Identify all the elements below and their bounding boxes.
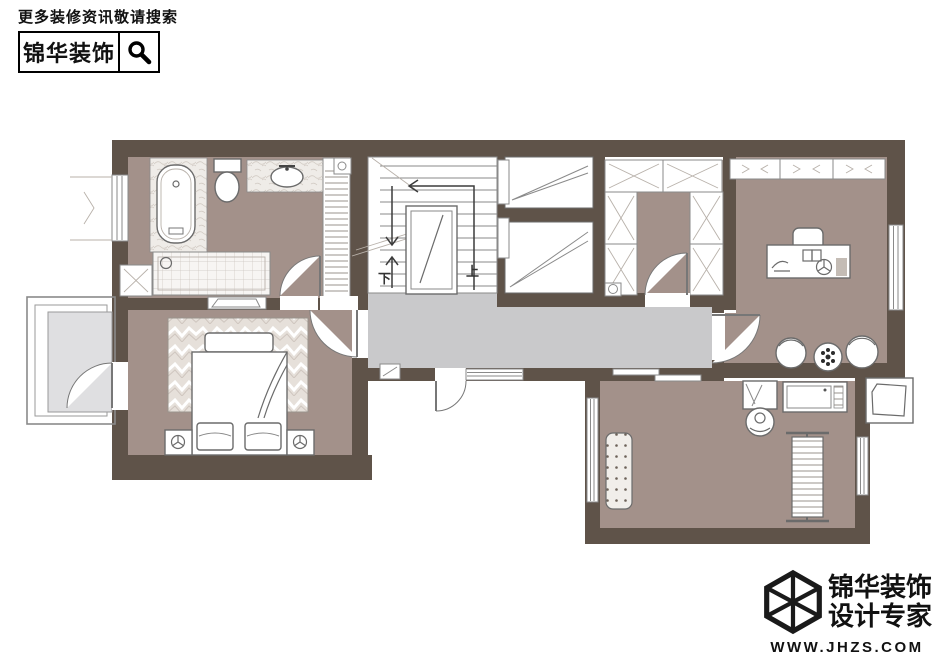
- corridor-window: [466, 369, 523, 380]
- cube-wireframe-icon: [762, 568, 824, 636]
- stairs-down-label: 下: [378, 271, 391, 286]
- bathroom-window: [112, 175, 128, 241]
- gym-window-left: [587, 398, 598, 502]
- terrace-door: [436, 381, 466, 411]
- void-room-upper: [505, 157, 593, 208]
- footer-logo-block: 锦华装饰 设计专家 WWW.JHZS.COM: [762, 568, 932, 656]
- treadmill: [786, 433, 829, 521]
- mini-hall: [352, 310, 368, 358]
- tub-faucet: [169, 228, 183, 234]
- bench: [205, 333, 273, 352]
- tub-chair: [846, 336, 878, 368]
- pillow: [245, 423, 281, 450]
- gym-window-right: [857, 437, 868, 495]
- closet-unit: [833, 159, 885, 179]
- void-rooms: [498, 157, 593, 293]
- corner-unit: [334, 158, 351, 174]
- stairs-up-label: 上: [466, 264, 479, 279]
- toilet: [215, 172, 239, 202]
- floorplan: 上 下: [0, 0, 940, 664]
- footer-brand: 锦华装饰: [828, 573, 932, 602]
- footer-tagline: 设计专家: [828, 602, 932, 631]
- footer-url: WWW.JHZS.COM: [762, 639, 932, 656]
- closet-unit: [730, 159, 780, 179]
- desk-tray: [836, 258, 847, 276]
- study-window: [889, 225, 903, 310]
- chaise: [606, 433, 632, 509]
- gym-desk: [743, 381, 777, 409]
- closet-unit: [780, 159, 833, 179]
- shower: [153, 252, 270, 295]
- toilet-tank: [214, 159, 241, 172]
- tub-chair: [776, 338, 806, 368]
- pillow: [197, 423, 233, 450]
